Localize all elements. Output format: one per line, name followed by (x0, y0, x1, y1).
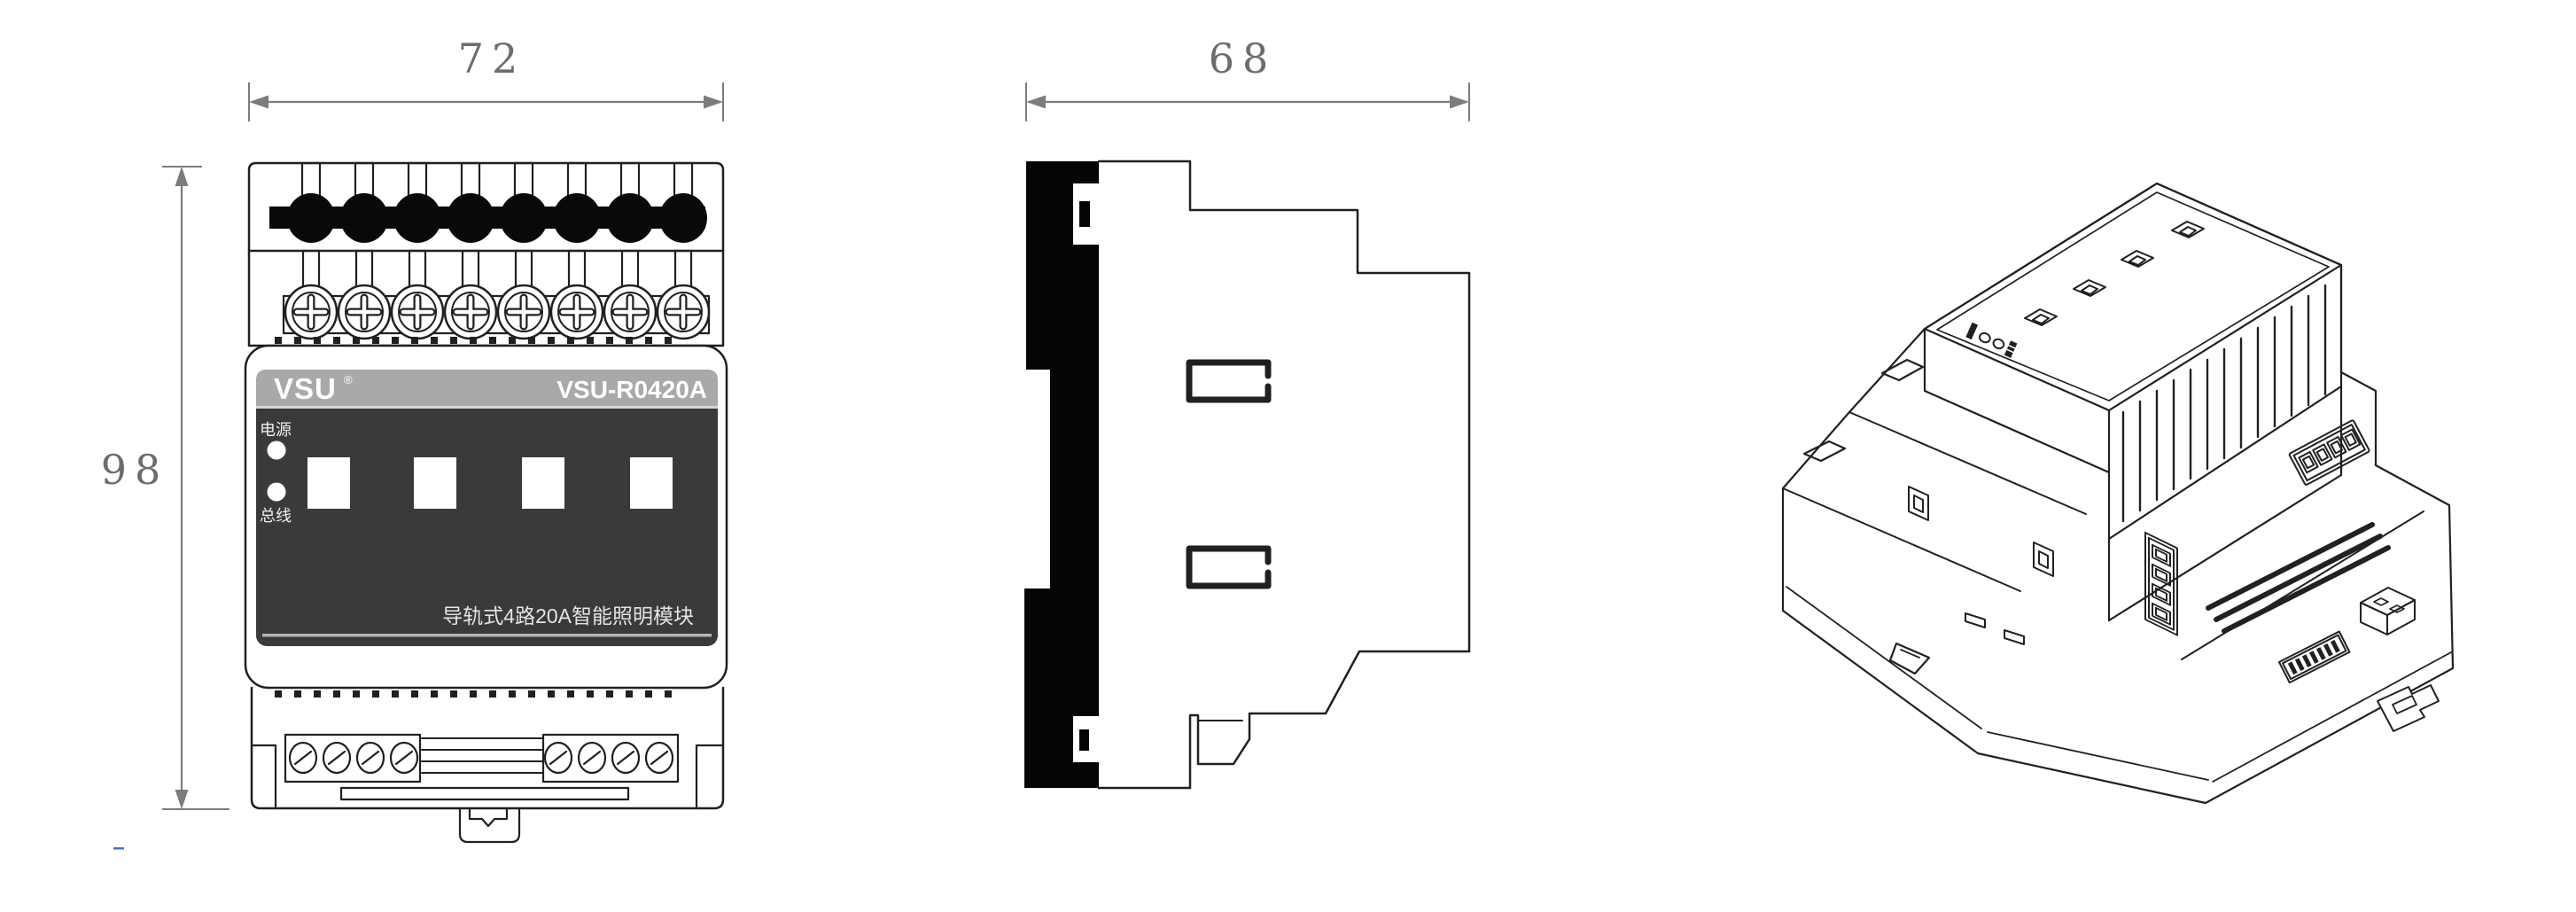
dimension-drawing: 72 98 68 (0, 0, 2576, 912)
power-led (268, 441, 286, 460)
channel-button-1 (307, 457, 350, 509)
side-profile-outline (1099, 161, 1469, 788)
front-bottom-block (252, 688, 723, 842)
screw (392, 285, 443, 339)
bus-led-label: 总线 (260, 507, 292, 525)
screw (551, 285, 603, 339)
arrow-right-icon (1450, 96, 1469, 109)
arrow-left-icon (249, 96, 268, 109)
dim-depth-value: 68 (1209, 35, 1277, 82)
screw (498, 285, 549, 339)
front-view: VSU ® VSU-R0420A 电源 总线 导轨式4路20A智能照明模块 (245, 163, 727, 842)
din-clip-front (460, 808, 519, 842)
dimension-height-98: 98 (101, 167, 230, 809)
dim-height-value: 98 (101, 446, 169, 494)
screw (445, 285, 496, 339)
screw (285, 285, 337, 339)
dim-width-value: 72 (458, 35, 526, 82)
side-view (1024, 161, 1469, 788)
screw (604, 285, 656, 339)
channel-button-2 (414, 457, 456, 509)
iso-silhouette (1783, 183, 2453, 803)
brand-logo: VSU (274, 372, 337, 405)
bottom-slot (341, 788, 628, 799)
model-number: VSU-R0420A (556, 376, 707, 403)
rail-notch-bottom-pin (1079, 729, 1089, 751)
din-rail-zone (1024, 161, 1099, 788)
artifact-dash (113, 847, 124, 850)
screw (658, 285, 709, 339)
power-led-label: 电源 (260, 421, 292, 439)
dimension-depth-68: 68 (1026, 35, 1469, 121)
front-label-panel: VSU ® VSU-R0420A 电源 总线 导轨式4路20A智能照明模块 (256, 370, 718, 646)
channel-button-3 (522, 457, 564, 509)
registered-mark-icon: ® (344, 373, 353, 386)
iso-view (1783, 183, 2453, 803)
dimension-width-72: 72 (249, 35, 723, 121)
product-caption: 导轨式4路20A智能照明模块 (442, 604, 694, 627)
panel-bottom-line (262, 634, 712, 637)
arrow-left-icon (1026, 96, 1046, 109)
arrow-up-icon (175, 167, 189, 186)
arrow-down-icon (175, 790, 189, 809)
arrow-right-icon (704, 96, 723, 109)
bottom-screw-block-left (285, 735, 420, 782)
screw (339, 285, 390, 339)
channel-button-4 (630, 457, 673, 509)
drawing-canvas: 72 98 68 (0, 0, 2576, 912)
header-underline (256, 406, 718, 409)
bus-led (268, 483, 286, 502)
bottom-vent-lines (422, 738, 542, 773)
rail-notch-top-pin (1079, 201, 1090, 227)
